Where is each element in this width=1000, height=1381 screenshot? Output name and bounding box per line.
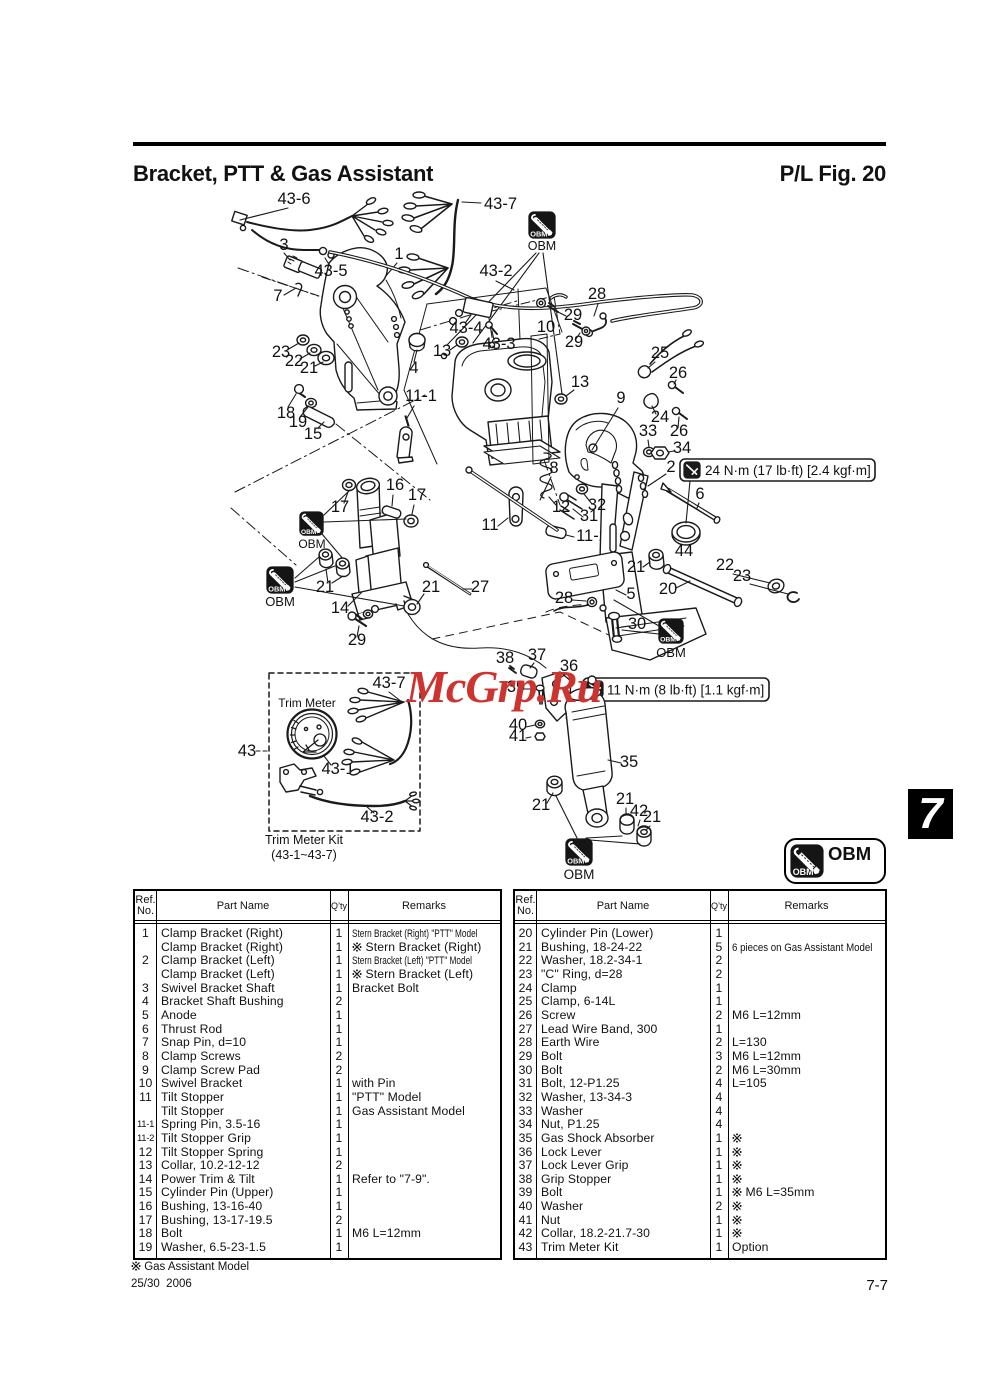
svg-text:24 N·m (17 lb·ft) [2.4 kgf·m]: 24 N·m (17 lb·ft) [2.4 kgf·m] (705, 463, 871, 478)
svg-text:10: 10 (537, 318, 555, 336)
svg-text:43-7: 43-7 (484, 195, 517, 213)
svg-text:OBM: OBM (298, 537, 325, 551)
svg-text:27: 27 (471, 578, 489, 596)
svg-text:33: 33 (639, 422, 657, 440)
svg-text:14: 14 (331, 599, 349, 617)
svg-text:22: 22 (716, 556, 734, 574)
svg-text:26: 26 (669, 364, 687, 382)
svg-text:17: 17 (408, 486, 426, 504)
svg-text:43: 43 (238, 742, 256, 760)
svg-text:43-6: 43-6 (277, 190, 310, 208)
svg-text:26: 26 (670, 422, 688, 440)
svg-text:6: 6 (695, 485, 704, 503)
svg-text:30: 30 (628, 615, 646, 633)
svg-text:3: 3 (279, 236, 288, 254)
svg-text:21: 21 (627, 558, 645, 576)
svg-text:20: 20 (659, 580, 677, 598)
svg-text:44: 44 (675, 542, 693, 560)
svg-text:43-2: 43-2 (360, 808, 393, 826)
svg-text:2: 2 (666, 458, 675, 476)
svg-text:15: 15 (304, 425, 322, 443)
svg-text:OBM: OBM (656, 645, 686, 660)
svg-text:7: 7 (273, 287, 282, 305)
svg-text:17: 17 (331, 498, 349, 516)
svg-text:11: 11 (481, 516, 498, 534)
svg-text:43-2: 43-2 (479, 262, 512, 280)
svg-text:25: 25 (651, 344, 669, 362)
svg-text:8: 8 (549, 459, 558, 477)
svg-text:OBM: OBM (528, 239, 556, 253)
svg-text:43-3: 43-3 (482, 335, 515, 353)
svg-text:OBM: OBM (265, 594, 295, 609)
svg-text:11 N·m (8 lb·ft) [1.1 kgf·m]: 11 N·m (8 lb·ft) [1.1 kgf·m] (607, 683, 764, 698)
svg-text:23: 23 (733, 567, 751, 585)
svg-text:43-7: 43-7 (372, 674, 405, 692)
svg-text:Trim Meter: Trim Meter (278, 696, 336, 710)
svg-text:Trim Meter Kit: Trim Meter Kit (265, 833, 344, 847)
svg-text:29: 29 (348, 631, 366, 649)
svg-text:29: 29 (564, 306, 582, 324)
svg-text:21: 21 (643, 808, 661, 826)
svg-text:OBM: OBM (564, 867, 595, 882)
svg-text:34: 34 (673, 439, 691, 457)
svg-text:35: 35 (620, 753, 638, 771)
svg-text:21: 21 (316, 578, 334, 596)
svg-text:29: 29 (565, 333, 583, 351)
svg-text:43-5: 43-5 (314, 262, 347, 280)
svg-text:41: 41 (509, 727, 527, 745)
svg-text:13: 13 (571, 373, 589, 391)
svg-text:5: 5 (626, 585, 635, 603)
svg-text:16: 16 (386, 476, 404, 494)
svg-text:21: 21 (422, 578, 440, 596)
svg-text:11-1: 11-1 (405, 387, 437, 405)
svg-text:21: 21 (300, 359, 318, 377)
svg-text:13: 13 (433, 342, 451, 360)
svg-text:28: 28 (588, 285, 606, 303)
svg-text:9: 9 (616, 389, 625, 407)
svg-text:28: 28 (555, 589, 573, 607)
svg-text:21: 21 (532, 796, 550, 814)
svg-text:(43-1~43-7): (43-1~43-7) (271, 848, 337, 862)
svg-text:1: 1 (394, 245, 403, 263)
